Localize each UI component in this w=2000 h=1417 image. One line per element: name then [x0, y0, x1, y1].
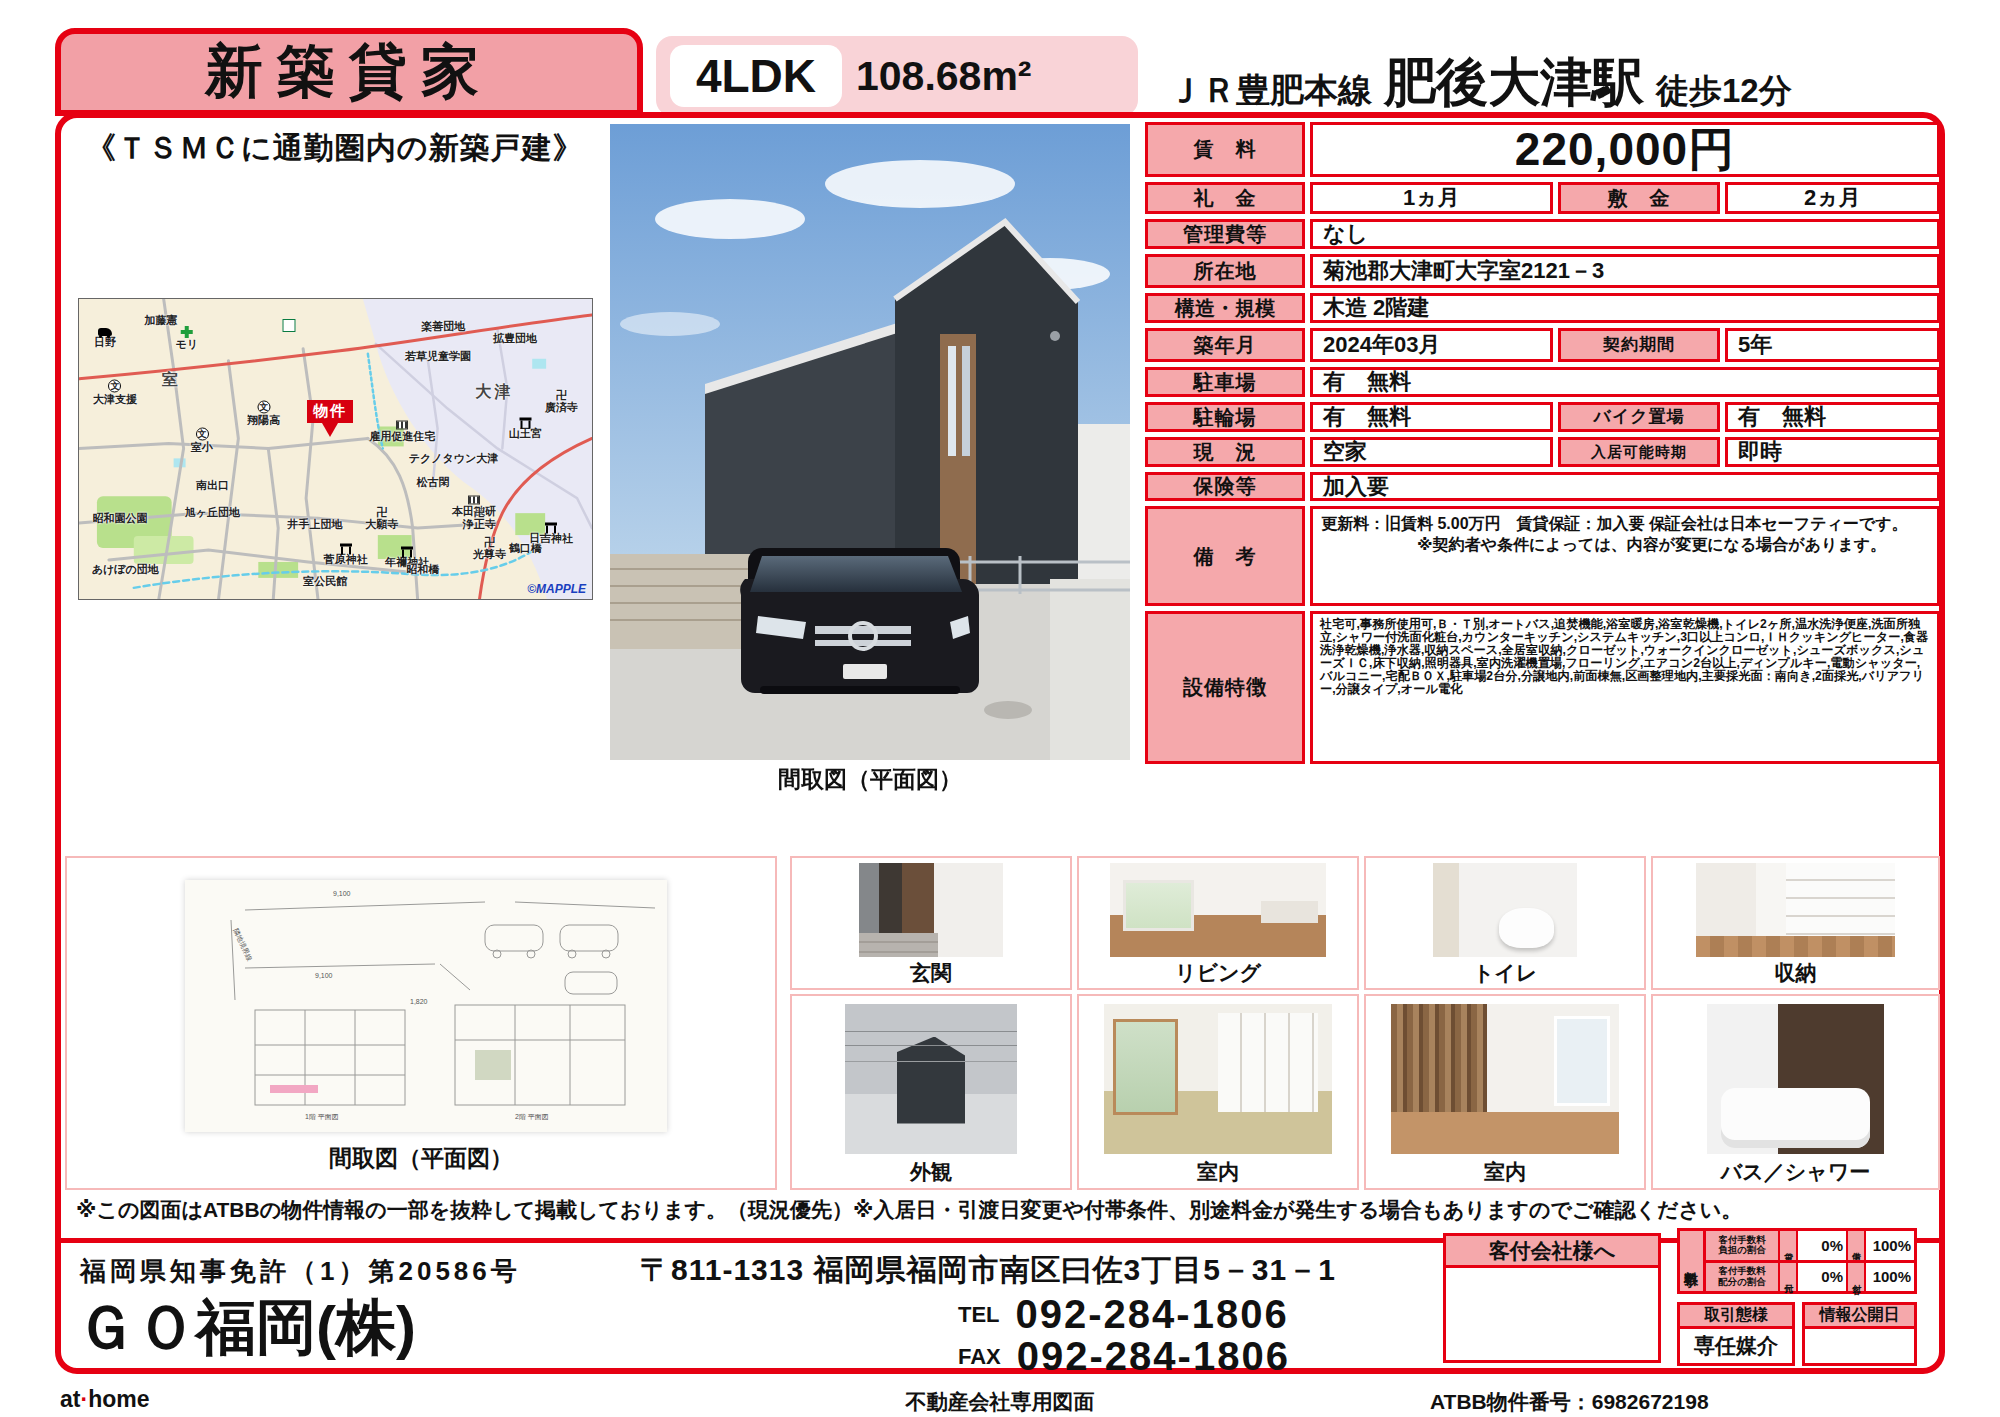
address-value: 菊池郡大津町大字室2121－3 [1310, 254, 1940, 288]
map-label: 松古閑 [416, 477, 449, 488]
fee-value: 100% [1864, 1263, 1914, 1292]
torii-map-icon [401, 547, 413, 556]
agent-company-header: 客付会社様へ [1446, 1236, 1658, 1268]
map-label: 拡豊団地 [493, 333, 537, 344]
main-photo-caption: 間取図（平面図） [610, 764, 1130, 795]
rent-row: 賃 料 220,000円 [1145, 122, 1940, 177]
map-label: テクノタウン大津 [409, 453, 499, 464]
current-status-value: 空家 [1310, 437, 1553, 467]
torii-map-icon [340, 544, 352, 553]
transaction-type-label: 取引態様 [1680, 1305, 1792, 1329]
company-name: ＧＯ福岡(株) [76, 1288, 416, 1369]
structure-value: 木造 2階建 [1310, 293, 1940, 323]
publish-date-label: 情報公開日 [1805, 1305, 1914, 1329]
features-label: 設備特徴 [1145, 611, 1305, 764]
photo-cell-genkan: 玄関 [790, 856, 1072, 990]
bicycle-row: 駐輪場 有 無料 バイク置場 有 無料 [1145, 402, 1940, 432]
map-label: 室公民館 [303, 576, 347, 587]
disclaimer-text: ※この図面はATBBの物件情報の一部を抜粋して掲載しております。（現況優先）※入… [76, 1196, 1916, 1224]
floorplan-panel: 9,100 隣地境界線 9,100 1,820 1階 平面図 2階 平面図 間取… [65, 856, 777, 1190]
rail-line: ＪＲ豊肥本線 [1168, 68, 1372, 118]
move-in-value: 即時 [1725, 437, 1940, 467]
map-label: 文室小 [191, 428, 213, 453]
key-money-value: 1ヵ月 [1310, 182, 1553, 214]
map-label: 南出口 [196, 480, 229, 491]
bath-photo [1707, 1004, 1884, 1154]
car-map-icon [98, 328, 112, 336]
tel-row: TEL 092-284-1806 [958, 1292, 1289, 1337]
features-value: 社宅可,事務所使用可,Ｂ・Ｔ別,オートバス,追焚機能,浴室暖房,浴室乾燥機,トイ… [1310, 611, 1940, 764]
photo-caption: 玄関 [910, 957, 952, 988]
bicycle-parking-label: 駐輪場 [1145, 402, 1305, 432]
photo-cell-interior-2: 室内 [1364, 994, 1646, 1190]
insurance-value: 加入要 [1310, 472, 1940, 501]
rent-value: 220,000円 [1310, 122, 1940, 177]
map-label: 井手上団地 [287, 519, 342, 530]
property-details-table: 賃 料 220,000円 礼 金 1ヵ月 敷 金 2ヵ月 管理費等 なし 所在地… [1145, 122, 1940, 769]
map-label: 雇用促進住宅 [369, 421, 435, 442]
agent-company-box: 客付会社様へ [1443, 1233, 1661, 1363]
photo-caption: 収納 [1775, 957, 1817, 988]
fee-party: 借主 [1846, 1231, 1864, 1260]
new-build-rental-banner: 新築貸家 [55, 28, 643, 116]
temple-map-icon: 卍 [556, 390, 567, 401]
map-label: 卍浄正寺 [463, 507, 496, 530]
floorplan-annotation: 1階 平面図 [305, 1112, 339, 1122]
map-label: あけぼの団地 [92, 564, 159, 575]
bldg-map-icon [468, 496, 480, 505]
management-fee-label: 管理費等 [1145, 219, 1305, 249]
fee-name: 客付手数料 配分の割合 [1706, 1263, 1778, 1292]
structure-label: 構造・規模 [1145, 293, 1305, 323]
photo-caption: バス／シャワー [1721, 1156, 1870, 1188]
motorbike-label: バイク置場 [1558, 402, 1720, 432]
station-access-line: ＪＲ豊肥本線 肥後大津駅 徒歩12分 [1168, 42, 1948, 118]
built-date-value: 2024年03月 [1310, 328, 1553, 362]
school-map-icon: 文 [257, 401, 270, 414]
map-label: 日野 [94, 328, 116, 348]
map-label: 昭和橋 [406, 564, 439, 575]
location-map: 日野加藤憲モリ室文大津支援文翔陽高文室小若草児童学園拡豊団地楽善団地大津卍廣済寺… [78, 298, 593, 600]
structure-row: 構造・規模 木造 2階建 [1145, 293, 1940, 323]
map-label: 卍大願寺 [365, 507, 398, 530]
insurance-row: 保険等 加入要 [1145, 472, 1940, 501]
torii-map-icon [519, 418, 531, 427]
map-label: 文大津支援 [93, 380, 137, 405]
property-marker: 物件 [307, 400, 353, 437]
floorplan-annotation: 2階 平面図 [515, 1112, 549, 1122]
map-label [283, 319, 296, 333]
license-number: 福岡県知事免許（1）第20586号 [80, 1254, 521, 1289]
publish-date-box: 情報公開日 [1802, 1302, 1917, 1366]
school-map-icon: 文 [108, 380, 121, 393]
fee-row-split: 客付手数料 配分の割合 元付 0% 客付 100% [1706, 1260, 1914, 1292]
photo-caption: トイレ [1473, 957, 1537, 988]
atbb-property-number: ATBB物件番号：6982672198 [1430, 1388, 1709, 1416]
photo-cell-toilet: トイレ [1364, 856, 1646, 990]
main-exterior-photo [610, 124, 1130, 760]
fee-table: 手数料 客付手数料 負担の割合 貸主 0% 借主 100% 客付手数料 配分の割… [1677, 1228, 1917, 1294]
map-credit: ©MAPPLE [527, 582, 586, 596]
map-label: 大津 [476, 384, 514, 400]
contract-term-value: 5年 [1725, 328, 1940, 362]
photo-cell-bath: バス／シャワー [1651, 994, 1940, 1190]
insurance-label: 保険等 [1145, 472, 1305, 501]
management-fee-value: なし [1310, 219, 1940, 249]
cross-map-icon [181, 326, 193, 338]
status-row: 現 況 空家 入居可能時期 即時 [1145, 437, 1940, 467]
map-label: 鶴口橋 [509, 543, 542, 554]
temple-map-icon: 卍 [484, 537, 495, 548]
layout-area-badge: 4LDK 108.68m² [656, 36, 1138, 116]
fee-value: 0% [1796, 1231, 1846, 1260]
fee-row-burden: 客付手数料 負担の割合 貸主 0% 借主 100% [1706, 1231, 1914, 1260]
exterior-photo [845, 1004, 1017, 1154]
fee-value: 0% [1796, 1263, 1846, 1292]
temple-map-icon: 卍 [376, 507, 387, 518]
floorplan-scan: 9,100 隣地境界線 9,100 1,820 1階 平面図 2階 平面図 [185, 880, 667, 1132]
map-label: 菅原神社 [324, 544, 368, 565]
photo-caption: 外観 [910, 1156, 952, 1188]
motorbike-value: 有 無料 [1725, 402, 1940, 432]
map-label: 加藤憲 [145, 315, 178, 326]
fee-value: 100% [1864, 1231, 1914, 1260]
walk-minutes: 徒歩12分 [1656, 69, 1792, 118]
layout-pill: 4LDK [670, 45, 842, 107]
map-label: モリ [175, 326, 198, 350]
map-label: 室 [162, 372, 181, 388]
map-label: 山王宮 [509, 418, 542, 439]
floorplan-line-art [185, 880, 667, 1132]
photo-cell-storage: 収納 [1651, 856, 1940, 990]
parking-row: 駐車場 有 無料 [1145, 367, 1940, 397]
floorplan-caption: 間取図（平面図） [67, 1143, 775, 1174]
tel-number: 092-284-1806 [1016, 1292, 1289, 1337]
management-fee-row: 管理費等 なし [1145, 219, 1940, 249]
deposit-row: 礼 金 1ヵ月 敷 金 2ヵ月 [1145, 182, 1940, 214]
transaction-type-value: 専任媒介 [1680, 1329, 1792, 1363]
rent-label: 賃 料 [1145, 122, 1305, 177]
deposit-label: 敷 金 [1558, 182, 1720, 214]
bicycle-parking-value: 有 無料 [1310, 402, 1553, 432]
photo-cell-interior-1: 室内 [1077, 994, 1359, 1190]
temple-map-icon: 卍 [474, 507, 485, 518]
move-in-label: 入居可能時期 [1558, 437, 1720, 467]
built-date-label: 築年月 [1145, 328, 1305, 362]
map-label: 若草児童学園 [405, 351, 471, 362]
genkan-photo [859, 863, 1004, 957]
notes-label: 備 考 [1145, 506, 1305, 606]
photo-caption: 室内 [1484, 1156, 1526, 1188]
map-label: 昭和園公園 [93, 513, 148, 524]
address-row: 所在地 菊池郡大津町大字室2121－3 [1145, 254, 1940, 288]
publish-date-value [1805, 1329, 1914, 1363]
floorplan-annotation: 1,820 [410, 998, 428, 1005]
catchphrase: 《ＴＳＭＣに通勤圏内の新築戸建》 [86, 128, 666, 169]
parking-value: 有 無料 [1310, 367, 1940, 397]
floorplan-annotation: 9,100 [315, 972, 333, 979]
floorplan-annotation: 9,100 [333, 890, 351, 897]
map-label: 卍光尊寺 [473, 537, 506, 560]
property-marker-pointer [322, 423, 338, 437]
bldg-map-icon [396, 421, 408, 430]
fee-party: 貸主 [1778, 1231, 1796, 1260]
notes-row: 備 考 更新料：旧賃料 5.00万円 賃貸保証：加入要 保証会社は日本セーフティ… [1145, 506, 1940, 606]
contract-term-label: 契約期間 [1558, 328, 1720, 362]
photo-cell-living: リビング [1077, 856, 1359, 990]
current-status-label: 現 況 [1145, 437, 1305, 467]
storage-photo [1696, 863, 1896, 957]
fax-number: 092-284-1806 [1017, 1334, 1290, 1379]
fee-name: 客付手数料 負担の割合 [1706, 1231, 1778, 1260]
interior-photo-1 [1104, 1004, 1332, 1154]
property-marker-label: 物件 [307, 400, 353, 423]
map-label: 旭ヶ丘団地 [185, 507, 240, 518]
school-map-icon: 文 [196, 428, 209, 441]
fee-table-title: 手数料 [1680, 1231, 1706, 1291]
address-label: 所在地 [1145, 254, 1305, 288]
seven-map-icon [283, 319, 296, 332]
photo-cell-exterior: 外観 [790, 994, 1072, 1190]
tel-label: TEL [958, 1302, 1000, 1328]
map-label: 日吉神社 [529, 523, 573, 544]
built-row: 築年月 2024年03月 契約期間 5年 [1145, 328, 1940, 362]
notes-value: 更新料：旧賃料 5.00万円 賃貸保証：加入要 保証会社は日本セーフティーです。… [1310, 506, 1940, 606]
interior-photo-2 [1391, 1004, 1619, 1154]
map-label: 文翔陽高 [247, 401, 280, 426]
floor-area: 108.68m² [856, 53, 1032, 100]
fax-label: FAX [958, 1344, 1001, 1370]
map-label: 卍廣済寺 [545, 390, 578, 413]
fee-party: 元付 [1778, 1263, 1796, 1292]
features-row: 設備特徴 社宅可,事務所使用可,Ｂ・Ｔ別,オートバス,追焚機能,浴室暖房,浴室乾… [1145, 611, 1940, 764]
company-address: 〒811-1313 福岡県福岡市南区曰佐3丁目5－31－1 [640, 1250, 1336, 1291]
station-name: 肥後大津駅 [1384, 48, 1644, 118]
fee-party: 客付 [1846, 1263, 1864, 1292]
toilet-photo [1433, 863, 1578, 957]
transaction-type-box: 取引態様 専任媒介 [1677, 1302, 1795, 1366]
key-money-label: 礼 金 [1145, 182, 1305, 214]
parking-label: 駐車場 [1145, 367, 1305, 397]
deposit-value: 2ヵ月 [1725, 182, 1940, 214]
fax-row: FAX 092-284-1806 [958, 1334, 1290, 1379]
living-photo [1110, 863, 1327, 957]
torii-map-icon [545, 523, 557, 532]
photo-caption: リビング [1175, 957, 1261, 988]
map-label: 楽善団地 [421, 321, 465, 332]
exterior-photo-art [610, 124, 1130, 760]
photo-caption: 室内 [1197, 1156, 1239, 1188]
